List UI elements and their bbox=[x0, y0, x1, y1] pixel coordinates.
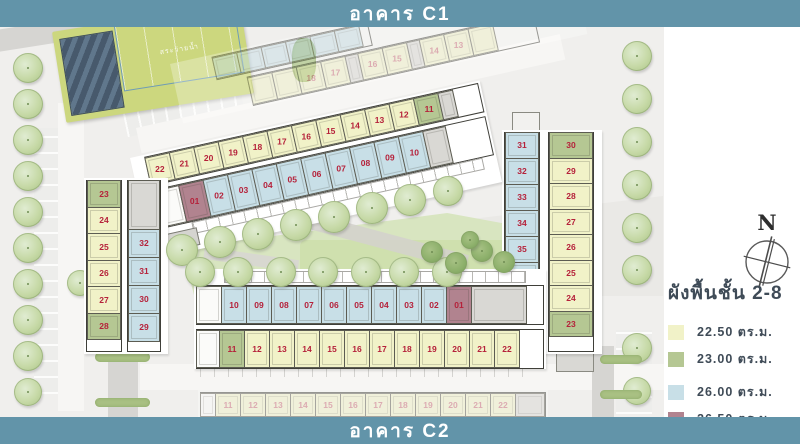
unit-cell-01: 01 bbox=[446, 286, 472, 324]
unit-number: 13 bbox=[277, 345, 286, 354]
tree-icon bbox=[13, 53, 43, 83]
unit-number: 35 bbox=[517, 245, 526, 254]
unit-number: 31 bbox=[139, 267, 148, 276]
tree-icon bbox=[280, 209, 312, 241]
unit-cell-18: 18 bbox=[394, 330, 420, 368]
road-left-vertical bbox=[58, 103, 84, 411]
hedge bbox=[95, 398, 150, 407]
unit-number: 18 bbox=[402, 345, 411, 354]
tree-icon bbox=[622, 213, 652, 243]
unit-cell-30: 30 bbox=[549, 132, 593, 159]
tree-icon bbox=[493, 251, 515, 273]
unit-number: 12 bbox=[399, 110, 408, 119]
unit-number: 29 bbox=[139, 323, 148, 332]
unit-number: 30 bbox=[139, 295, 148, 304]
unit-number: 15 bbox=[326, 127, 335, 136]
unit-cell-25: 25 bbox=[87, 233, 121, 261]
unit-number: 18 bbox=[398, 401, 407, 410]
compass-north-label: N bbox=[737, 210, 797, 235]
tree-icon bbox=[13, 89, 43, 119]
unit-number: 16 bbox=[368, 60, 377, 69]
unit-cell-31: 31 bbox=[128, 257, 160, 286]
unit-number: 20 bbox=[448, 401, 457, 410]
unit-number: 14 bbox=[430, 46, 439, 55]
unit-number: 04 bbox=[379, 301, 388, 310]
tree-icon bbox=[461, 231, 479, 249]
tree-icon bbox=[421, 241, 443, 263]
unit-cell-14: 14 bbox=[290, 393, 316, 417]
unit-number: 15 bbox=[327, 345, 336, 354]
clubhouse-glass-roof bbox=[59, 31, 125, 116]
unit-cell-16: 16 bbox=[340, 393, 366, 417]
unit-cell-32: 32 bbox=[128, 229, 160, 258]
tree-icon bbox=[356, 192, 388, 224]
unit-number: 16 bbox=[352, 345, 361, 354]
unit-number: 16 bbox=[348, 401, 357, 410]
unit-cell-23: 23 bbox=[87, 180, 121, 208]
header-banner-c1: อาคาร C1 bbox=[0, 0, 800, 27]
unit-cell-13: 13 bbox=[265, 393, 291, 417]
unit-number: 26 bbox=[566, 243, 575, 252]
unit-cell-12: 12 bbox=[244, 330, 270, 368]
hedge bbox=[600, 355, 642, 364]
unit-cell-20: 20 bbox=[440, 393, 466, 417]
plan-cell bbox=[515, 393, 545, 417]
tree-icon bbox=[14, 378, 42, 406]
unit-number: 16 bbox=[302, 132, 311, 141]
tree-icon bbox=[445, 252, 467, 274]
unit-number: 02 bbox=[215, 191, 224, 200]
swatch-26-00-icon bbox=[668, 385, 684, 400]
unit-number: 06 bbox=[312, 170, 321, 179]
unit-number: 17 bbox=[373, 401, 382, 410]
unit-number: 20 bbox=[204, 154, 213, 163]
plan-cell bbox=[334, 25, 364, 52]
unit-number: 17 bbox=[331, 68, 340, 77]
tree-icon bbox=[223, 257, 253, 287]
tree-icon bbox=[242, 218, 274, 250]
unit-number: 17 bbox=[277, 137, 286, 146]
unit-number: 08 bbox=[279, 301, 288, 310]
unit-number: 07 bbox=[304, 301, 313, 310]
unit-number: 32 bbox=[517, 167, 526, 176]
tree-icon bbox=[308, 257, 338, 287]
unit-cell-07: 07 bbox=[296, 286, 322, 324]
unit-cell-27: 27 bbox=[87, 286, 121, 314]
unit-number: 05 bbox=[354, 301, 363, 310]
unit-number: 05 bbox=[288, 175, 297, 184]
unit-number: 03 bbox=[239, 186, 248, 195]
unit-cell-18: 18 bbox=[390, 393, 416, 417]
unit-cell-09: 09 bbox=[246, 286, 272, 324]
unit-cell-28: 28 bbox=[87, 313, 121, 341]
unit-number: 30 bbox=[566, 141, 575, 150]
hedge bbox=[600, 390, 642, 399]
unit-cell-06: 06 bbox=[321, 286, 347, 324]
tree-icon bbox=[351, 257, 381, 287]
unit-number: 27 bbox=[566, 218, 575, 227]
unit-cell-13: 13 bbox=[269, 330, 295, 368]
unit-number: 01 bbox=[190, 197, 199, 206]
unit-cell-14: 14 bbox=[294, 330, 320, 368]
unit-number: 02 bbox=[429, 301, 438, 310]
legend-item: 23.00 ตร.ม. bbox=[668, 349, 796, 369]
swatch-23-00-icon bbox=[668, 352, 684, 367]
unit-cell-15: 15 bbox=[315, 393, 341, 417]
tree-icon bbox=[433, 176, 463, 206]
unit-number: 14 bbox=[298, 401, 307, 410]
swatch-22-50-icon bbox=[668, 325, 684, 340]
unit-number: 21 bbox=[477, 345, 486, 354]
plan-cell bbox=[471, 286, 527, 324]
tree-icon bbox=[622, 41, 652, 71]
unit-number: 24 bbox=[566, 294, 575, 303]
unit-number: 01 bbox=[454, 301, 463, 310]
unit-number: 10 bbox=[229, 301, 238, 310]
unit-cell-24: 24 bbox=[87, 207, 121, 235]
unit-cell-25: 25 bbox=[549, 260, 593, 287]
legend-item: 26.00 ตร.ม. bbox=[668, 382, 796, 402]
unit-cell-02: 02 bbox=[421, 286, 447, 324]
unit-number: 09 bbox=[385, 153, 394, 162]
unit-cell-30: 30 bbox=[128, 285, 160, 314]
unit-cell-29: 29 bbox=[128, 313, 160, 342]
tree-icon bbox=[13, 341, 43, 371]
unit-number: 19 bbox=[423, 401, 432, 410]
unit-number: 23 bbox=[566, 320, 575, 329]
unit-number: 24 bbox=[99, 216, 108, 225]
unit-number: 18 bbox=[253, 143, 262, 152]
legend-label: 23.00 ตร.ม. bbox=[697, 349, 773, 369]
tree-icon bbox=[13, 161, 43, 191]
unit-cell-31: 31 bbox=[505, 132, 539, 159]
unit-cell-04: 04 bbox=[371, 286, 397, 324]
unit-number: 19 bbox=[229, 148, 238, 157]
unit-number: 08 bbox=[361, 159, 370, 168]
unit-cell-05: 05 bbox=[346, 286, 372, 324]
unit-cell-19: 19 bbox=[415, 393, 441, 417]
c2-wing-east-column: 3029282726252423 bbox=[548, 132, 594, 352]
unit-number: 13 bbox=[454, 41, 463, 50]
unit-number: 03 bbox=[404, 301, 413, 310]
footer-banner-c2: อาคาร C2 bbox=[0, 417, 800, 444]
unit-number: 34 bbox=[517, 219, 526, 228]
pool-label: สระว่ายน้ำ bbox=[159, 41, 200, 58]
unit-cell-19: 19 bbox=[419, 330, 445, 368]
building-c1-wing: 232425262728 32313029 bbox=[84, 178, 168, 354]
tree-icon bbox=[394, 184, 426, 216]
unit-cell-20: 20 bbox=[444, 330, 470, 368]
unit-number: 19 bbox=[427, 345, 436, 354]
tree-icon bbox=[13, 197, 43, 227]
unit-number: 11 bbox=[424, 105, 433, 114]
unit-cell-17: 17 bbox=[369, 330, 395, 368]
plan-cell bbox=[128, 180, 160, 230]
tree-icon bbox=[622, 84, 652, 114]
legend: ผังพื้นชั้น 2-8 22.50 ตร.ม. 23.00 ตร.ม. … bbox=[668, 278, 796, 436]
unit-number: 06 bbox=[329, 301, 338, 310]
unit-cell-33: 33 bbox=[505, 184, 539, 211]
tree-icon bbox=[622, 255, 652, 285]
site-plan-page: สระว่ายน้ำ 181716151413 1112131415161718… bbox=[0, 0, 800, 444]
unit-number: 33 bbox=[517, 193, 526, 202]
tree-icon bbox=[185, 257, 215, 287]
unit-cell-03: 03 bbox=[396, 286, 422, 324]
c1-wing-west-column: 232425262728 bbox=[86, 180, 122, 352]
tree-icon bbox=[389, 257, 419, 287]
plan-cell bbox=[196, 330, 220, 368]
unit-number: 04 bbox=[263, 181, 272, 190]
unit-number: 12 bbox=[248, 401, 257, 410]
unit-number: 27 bbox=[99, 296, 108, 305]
unit-number: 17 bbox=[377, 345, 386, 354]
unit-cell-26: 26 bbox=[549, 234, 593, 261]
unit-cell-11: 11 bbox=[219, 330, 245, 368]
unit-number: 13 bbox=[375, 116, 384, 125]
unit-number: 22 bbox=[155, 165, 164, 174]
unit-number: 23 bbox=[99, 190, 108, 199]
unit-cell-22: 22 bbox=[490, 393, 516, 417]
tree-icon bbox=[204, 226, 236, 258]
unit-number: 18 bbox=[307, 73, 316, 82]
unit-cell-34: 34 bbox=[505, 210, 539, 237]
unit-cell-21: 21 bbox=[465, 393, 491, 417]
unit-number: 10 bbox=[410, 148, 419, 157]
unit-number: 11 bbox=[224, 401, 233, 410]
unit-number: 29 bbox=[566, 167, 575, 176]
building-c1-title: อาคาร C1 bbox=[349, 0, 450, 29]
plan-cell bbox=[196, 286, 222, 324]
unit-number: 12 bbox=[252, 345, 261, 354]
unit-number: 11 bbox=[228, 345, 237, 354]
unit-number: 26 bbox=[99, 269, 108, 278]
unit-cell-21: 21 bbox=[469, 330, 495, 368]
building-c2-title: อาคาร C2 bbox=[349, 416, 450, 444]
unit-cell-26: 26 bbox=[87, 260, 121, 288]
tree-icon bbox=[13, 305, 43, 335]
tree-icon bbox=[13, 125, 43, 155]
unit-cell-28: 28 bbox=[549, 183, 593, 210]
unit-number: 25 bbox=[566, 269, 575, 278]
legend-label: 26.00 ตร.ม. bbox=[697, 382, 773, 402]
tree-icon bbox=[622, 127, 652, 157]
ghost-bottom-row: 111213141516171819202122 bbox=[200, 392, 546, 418]
unit-number: 14 bbox=[351, 121, 360, 130]
unit-number: 14 bbox=[302, 345, 311, 354]
legend-item: 22.50 ตร.ม. bbox=[668, 322, 796, 342]
unit-cell-17: 17 bbox=[365, 393, 391, 417]
unit-cell-23: 23 bbox=[549, 311, 593, 338]
unit-cell-27: 27 bbox=[549, 209, 593, 236]
unit-cell-08: 08 bbox=[271, 286, 297, 324]
unit-number: 15 bbox=[323, 401, 332, 410]
tree-icon bbox=[13, 269, 43, 299]
legend-label: 22.50 ตร.ม. bbox=[697, 322, 773, 342]
tree-icon bbox=[318, 201, 350, 233]
tree-icon bbox=[13, 233, 43, 263]
unit-cell-15: 15 bbox=[319, 330, 345, 368]
c1-wing-east-column: 32313029 bbox=[127, 180, 161, 352]
unit-number: 20 bbox=[452, 345, 461, 354]
unit-number: 09 bbox=[254, 301, 263, 310]
unit-cell-11: 11 bbox=[215, 393, 241, 417]
plan-cell bbox=[467, 23, 498, 56]
unit-number: 22 bbox=[498, 401, 507, 410]
unit-cell-10: 10 bbox=[221, 286, 247, 324]
unit-number: 28 bbox=[566, 192, 575, 201]
unit-number: 28 bbox=[99, 322, 108, 331]
tree-icon bbox=[266, 257, 296, 287]
unit-number: 07 bbox=[337, 164, 346, 173]
c2-lower-row: 111213141516171819202122 bbox=[196, 329, 544, 369]
unit-cell-16: 16 bbox=[344, 330, 370, 368]
unit-number: 32 bbox=[139, 239, 148, 248]
unit-cell-22: 22 bbox=[494, 330, 520, 368]
unit-cell-32: 32 bbox=[505, 158, 539, 185]
plan-cell bbox=[200, 393, 216, 417]
unit-number: 21 bbox=[180, 159, 189, 168]
legend-title: ผังพื้นชั้น 2-8 bbox=[668, 278, 796, 308]
unit-cell-12: 12 bbox=[240, 393, 266, 417]
unit-cell-29: 29 bbox=[549, 158, 593, 185]
unit-number: 21 bbox=[473, 401, 482, 410]
unit-number: 13 bbox=[273, 401, 282, 410]
unit-number: 31 bbox=[517, 141, 526, 150]
unit-cell-24: 24 bbox=[549, 285, 593, 312]
c2-upper-row: 10090807060504030201 bbox=[196, 285, 544, 325]
tree-icon bbox=[622, 170, 652, 200]
unit-number: 15 bbox=[393, 54, 402, 63]
unit-number: 25 bbox=[99, 243, 108, 252]
unit-number: 22 bbox=[502, 345, 511, 354]
